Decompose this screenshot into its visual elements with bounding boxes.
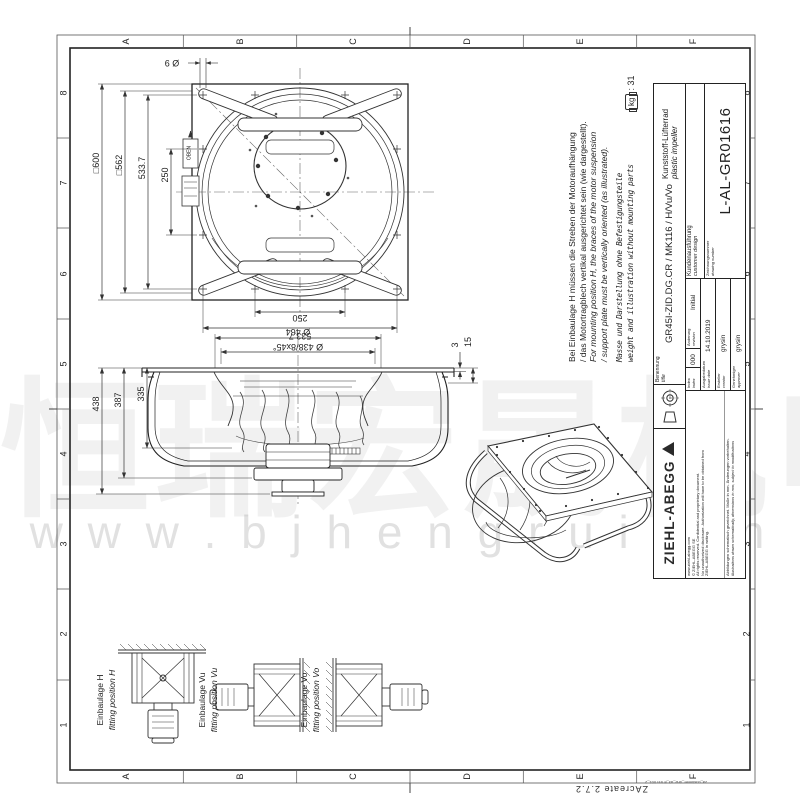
disclaimer-text: Abbildungen schematisch gezeichnet. Maße…: [725, 391, 745, 578]
weight-value: : 31: [626, 76, 636, 91]
fitting-label-h-en: fitting position H: [107, 660, 117, 740]
grid-numbers: 8 7 6 5 4 3 2 1 8 7 6 5 4 3 2 1: [59, 90, 752, 727]
revision-label: Änderungrevision: [686, 312, 700, 348]
note-de-line1: Bei Einbaulage H müssen die Streben der …: [567, 62, 578, 362]
oben-label: OBEN: [187, 146, 193, 161]
impeller-blades: [236, 389, 364, 452]
revision-value: Initial: [686, 279, 700, 312]
fitting-view-vo: [326, 658, 428, 732]
dim-387: 387: [113, 392, 123, 407]
dim-square600: □600: [91, 153, 101, 173]
grid-number: 1: [59, 722, 69, 727]
grid-number: 6: [59, 271, 69, 276]
grid-number: 1: [742, 722, 752, 727]
top-view: □600 □562 533.7 250 Ø 9 250 533.7 OBEN: [91, 58, 434, 341]
note-en-line1: For mounting position H, the braces of t…: [588, 62, 599, 362]
grid-letter: F: [688, 773, 698, 779]
drawing-sheet: 恒瑞宏晟机电 w w w . b j h e n g r u i . c n: [0, 0, 800, 800]
grid-letter: E: [575, 773, 585, 779]
drawing-number-label: Zeichnungsnummer drawing number: [705, 238, 745, 278]
approver-value: grysin: [731, 279, 745, 354]
disclaimer-en: illustrations drawn schematically, dimen…: [731, 393, 736, 576]
fitting-views: [118, 644, 428, 743]
terminal-box: [182, 176, 199, 206]
grid-number: 2: [742, 631, 752, 636]
dim-15: 15: [463, 337, 473, 347]
fitting-view-vu: [210, 658, 310, 732]
grid-letter: D: [462, 773, 472, 780]
template-filename: za_customer_drw_a3_E trin 001_2: [645, 780, 707, 785]
drawing-number-value: L-AL-GR01616: [705, 84, 745, 238]
fitting-label-vo-de: Einbaulage Vo: [299, 660, 309, 740]
grid-number: 8: [59, 90, 69, 95]
isometric-view: [465, 424, 652, 560]
brand-name: ZIEHL-ABEGG: [662, 461, 677, 565]
benennung-en: title: [662, 348, 668, 382]
dim-250-left: 250: [160, 167, 170, 182]
fitting-label-vu-en: fitting position Vu: [209, 660, 219, 740]
dim-533-left: 533.7: [137, 157, 147, 180]
section-view: Ø 464 Ø 438/8x45° 3 15 438 387 335: [91, 327, 478, 505]
dim-438-chamfer: Ø 438/8x45°: [273, 342, 324, 352]
grid-letter: D: [462, 38, 472, 45]
benennung-label: Benennung title: [654, 348, 685, 384]
dim-438: 438: [91, 396, 101, 411]
grid-letter: C: [348, 38, 358, 45]
grid-letter: A: [121, 773, 131, 779]
grid-letter: B: [235, 38, 245, 44]
grid-letter: E: [575, 38, 585, 44]
issue-date-value: 14.10.2019: [701, 279, 715, 354]
title-block: ZIEHL-ABEGG Benennung title: [653, 83, 746, 579]
dim-464: Ø 464: [286, 327, 311, 337]
dim-3: 3: [450, 342, 460, 347]
index-value: 000: [686, 348, 700, 367]
grid-number: 3: [59, 541, 69, 546]
projection-symbol: [654, 384, 685, 428]
grid-letter: B: [235, 773, 245, 779]
dim-square562: □562: [114, 155, 124, 175]
weight-icon: kg: [625, 94, 638, 110]
product-en: plastic impeller: [670, 126, 679, 179]
dim-hole-9: Ø 9: [165, 58, 180, 68]
oben-marker: [182, 131, 199, 206]
index-label: Indexindex: [686, 367, 700, 390]
note-de-line2: / das Motortragblech vertikal ausgericht…: [578, 62, 589, 362]
grid-number: 4: [59, 451, 69, 456]
fitting-view-h: [118, 644, 206, 743]
fitting-label-vo-en: fitting position Vo: [311, 660, 321, 740]
grid-number: 2: [59, 631, 69, 636]
dim-250-bottom: 250: [292, 313, 307, 323]
zacreate-version: ZAcreate 2.7.2: [575, 784, 648, 794]
legal-text: www.ziehl-abegg.com © ZIEHL-ABEGG SE All…: [686, 391, 725, 578]
brand-triangle-icon: [662, 443, 674, 457]
grid-letter: C: [348, 773, 358, 780]
creator-value: grysin: [716, 279, 730, 354]
weight-block: kg : 31: [620, 48, 642, 110]
grid-number: 5: [59, 361, 69, 366]
issue-date-label: Ausgabedatumissue date: [701, 354, 715, 390]
fitting-label-vu-de: Einbaulage Vu: [197, 660, 207, 740]
motor: [254, 444, 342, 496]
first-angle-projection-icon: [659, 389, 681, 425]
brand-logo: ZIEHL-ABEGG: [654, 428, 685, 578]
note-en-line2: / support plate must be vertically orien…: [599, 62, 610, 362]
approver-label: Genehmigerapprover: [731, 354, 745, 390]
grid-letter: F: [688, 38, 698, 44]
product-de: Kunststoff-Lüfterrad: [661, 109, 670, 179]
part-name: GR45I-ZID.DG.CR / MK116 / H/Vu/Vo: [654, 179, 685, 348]
product-type: Kunststoff-Lüfterrad plastic impeller: [654, 84, 685, 179]
fitting-label-h-de: Einbaulage H: [95, 660, 105, 740]
customer-design-label: Kundenausführung customer design: [686, 84, 705, 278]
legal-line: ZIEHL-ABEGG in writing.: [705, 393, 710, 576]
grid-number: 7: [59, 180, 69, 185]
dim-335: 335: [136, 386, 146, 401]
grid-letter: A: [121, 38, 131, 44]
creator-label: Erstellercreator: [716, 354, 730, 390]
